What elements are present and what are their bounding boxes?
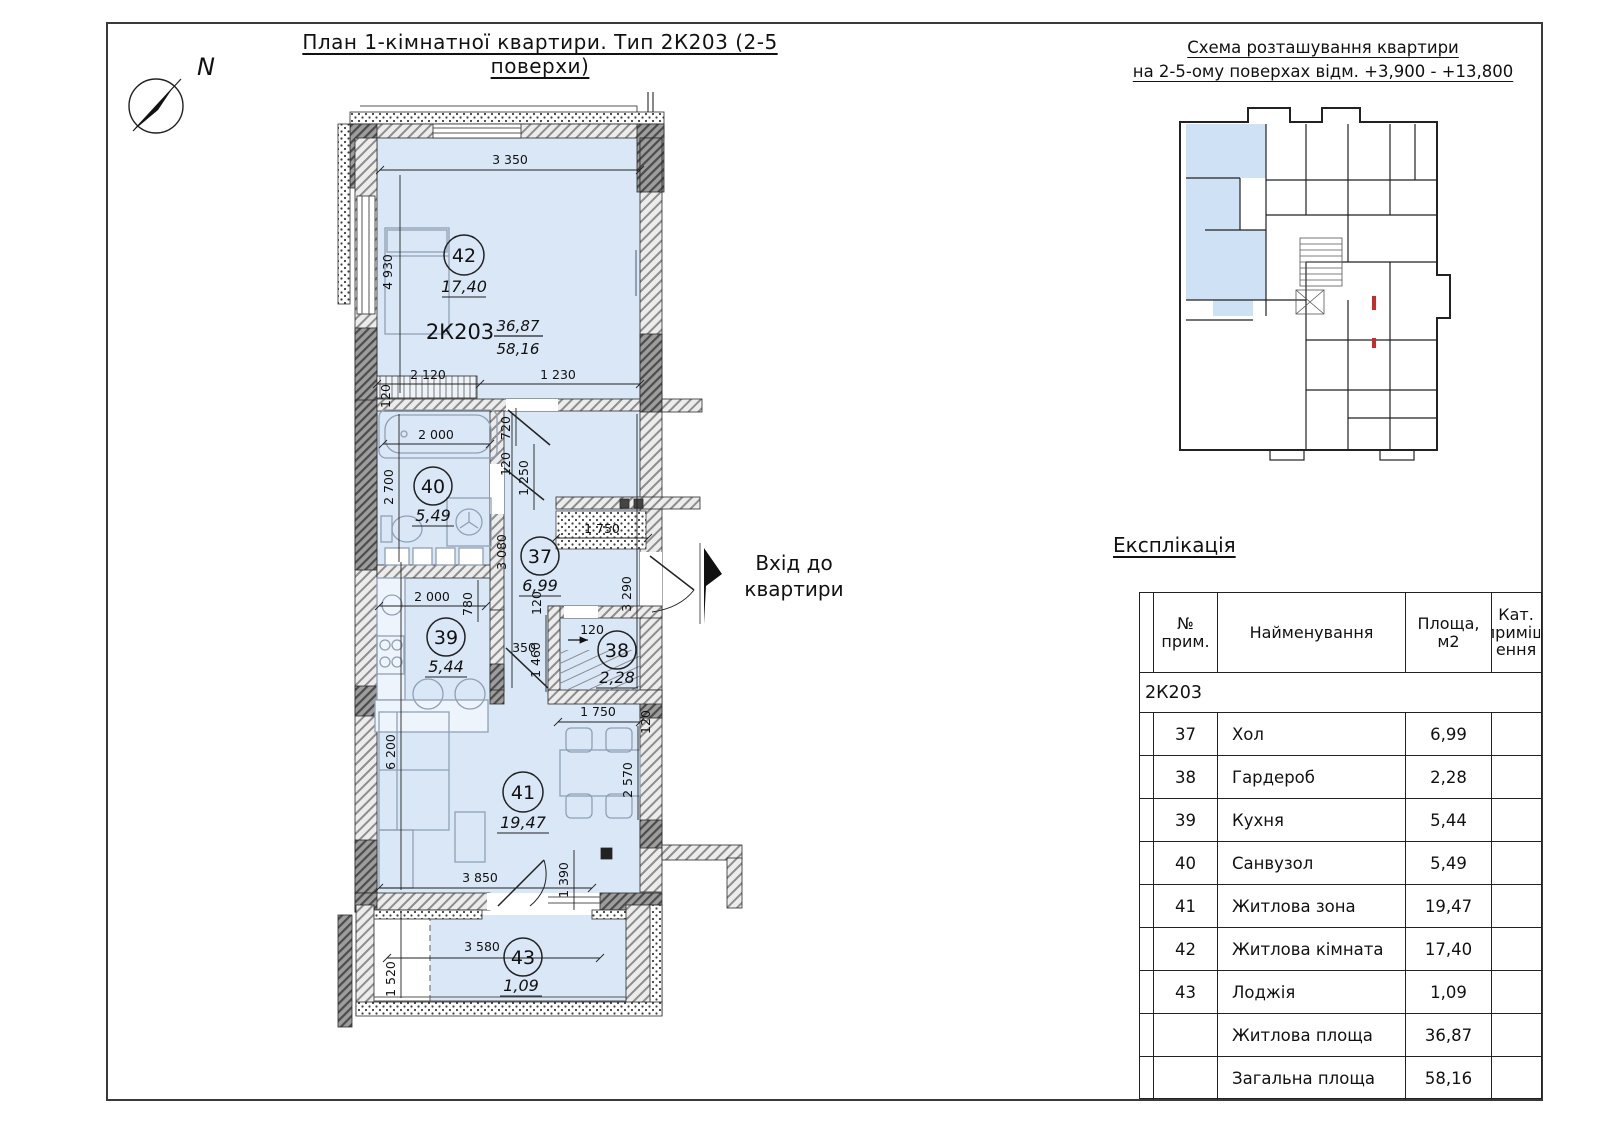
cell-num: 38: [1153, 756, 1217, 798]
dim: 1 750: [580, 704, 616, 719]
cell-num: 43: [1153, 971, 1217, 1013]
dim: 120: [638, 710, 653, 734]
col-header-area: Площа, м2: [1405, 593, 1491, 672]
dim: 2 570: [620, 762, 635, 798]
room-number: 43: [511, 947, 535, 969]
cell-area: 5,49: [1405, 842, 1491, 884]
table-header-row: № прим. Найменування Площа, м2 Кат. прим…: [1140, 593, 1541, 673]
apartment-plan: 3 350 4 930 2 120 1 230 120 2 000 2 700 …: [338, 92, 742, 1027]
cell-area: 6,99: [1405, 713, 1491, 755]
location-scheme: [1180, 108, 1450, 460]
cell-num: 42: [1153, 928, 1217, 970]
room-number: 38: [605, 640, 629, 662]
cell-cat: [1491, 713, 1540, 755]
cell-name: Лоджія: [1217, 971, 1405, 1013]
living-area-value: 36,87: [497, 317, 540, 335]
dim: 3 580: [464, 939, 500, 954]
room-area: 2,28: [599, 668, 635, 687]
table-row: 43 Лоджія 1,09: [1140, 971, 1541, 1014]
dim: 2 120: [410, 367, 446, 382]
table-row-total-living: Житлова площа 36,87: [1140, 1014, 1541, 1057]
drawing-sheet: N: [0, 0, 1600, 1132]
entrance-arrow-icon: [704, 548, 722, 624]
apartment-code: 2К203: [426, 320, 494, 344]
cell-cat: [1491, 885, 1540, 927]
col-header-num: № прим.: [1153, 593, 1217, 672]
red-marker: [1372, 296, 1376, 310]
cell-cat: [1491, 756, 1540, 798]
entrance-label-line2: квартири: [730, 576, 858, 602]
dim: 720: [498, 416, 513, 440]
cell-name: Гардероб: [1217, 756, 1405, 798]
explication-title: Експлікація: [1113, 533, 1236, 557]
dim: 3 290: [619, 576, 634, 612]
cell-area: 58,16: [1405, 1057, 1491, 1100]
dim: 1 520: [383, 961, 398, 997]
cell-area: 17,40: [1405, 928, 1491, 970]
highlighted-apartment: [1186, 124, 1266, 300]
room-number: 40: [421, 476, 445, 498]
room-area: 5,44: [428, 657, 464, 676]
dim: 2 000: [418, 427, 454, 442]
cell-area: 1,09: [1405, 971, 1491, 1013]
dim: 1 230: [540, 367, 576, 382]
cell-name: Житлова зона: [1217, 885, 1405, 927]
room-area: 6,99: [522, 576, 558, 595]
dim: 6 200: [383, 734, 398, 770]
red-marker: [1372, 338, 1376, 348]
header-spacer: [1140, 593, 1153, 672]
dim: 120: [378, 384, 393, 408]
explication-table: № прим. Найменування Площа, м2 Кат. прим…: [1139, 592, 1542, 1099]
cell-name: Хол: [1217, 713, 1405, 755]
cell-cat: [1491, 971, 1540, 1013]
scheme-title-line1: Схема розташування квартири: [1108, 36, 1538, 60]
cell-area: 19,47: [1405, 885, 1491, 927]
room-number: 42: [452, 245, 476, 267]
cell-num: 40: [1153, 842, 1217, 884]
cell-cat: [1491, 1057, 1540, 1100]
cell-name: Кухня: [1217, 799, 1405, 841]
cell-name: Житлова кімната: [1217, 928, 1405, 970]
table-row-total-overall: Загальна площа 58,16: [1140, 1057, 1541, 1100]
dim: 120: [580, 622, 604, 637]
room-area: 1,09: [503, 976, 539, 995]
stair-core: [1296, 238, 1342, 314]
cell-cat: [1491, 928, 1540, 970]
cell-area: 36,87: [1405, 1014, 1491, 1056]
room-number: 37: [528, 546, 552, 568]
scheme-title-line2: на 2-5-ому поверхах відм. +3,900 - +13,8…: [1108, 60, 1538, 84]
cell-name: Санвузол: [1217, 842, 1405, 884]
room-number: 41: [511, 782, 535, 804]
table-row: 41 Житлова зона 19,47: [1140, 885, 1541, 928]
cell-area: 5,44: [1405, 799, 1491, 841]
dim: 1 250: [516, 460, 531, 496]
table-row: 39 Кухня 5,44: [1140, 799, 1541, 842]
cell-num: [1153, 1014, 1217, 1056]
col-header-name: Найменування: [1217, 593, 1405, 672]
table-row: 40 Санвузол 5,49: [1140, 842, 1541, 885]
plan-title: План 1-кімнатної квартири. Тип 2К203 (2-…: [250, 30, 830, 78]
total-area-value: 58,16: [497, 340, 540, 358]
dim: 120: [498, 452, 513, 476]
table-row: 42 Житлова кімната 17,40: [1140, 928, 1541, 971]
cell-num: 37: [1153, 713, 1217, 755]
cell-num: 41: [1153, 885, 1217, 927]
north-compass-icon: N: [129, 53, 215, 133]
cell-name: Житлова площа: [1217, 1014, 1405, 1056]
dim: 1 390: [556, 862, 571, 898]
room-area: 17,40: [441, 277, 487, 296]
dim: 3 850: [462, 870, 498, 885]
room-area: 19,47: [500, 813, 547, 832]
table-row: 38 Гардероб 2,28: [1140, 756, 1541, 799]
table-row: 37 Хол 6,99: [1140, 713, 1541, 756]
dim: 4 930: [380, 254, 395, 290]
dim: 3 080: [494, 534, 509, 570]
cell-num: 39: [1153, 799, 1217, 841]
table-group-row: 2К203: [1140, 673, 1541, 713]
dim: 1 750: [584, 521, 620, 536]
dim: 2 000: [414, 589, 450, 604]
cell-cat: [1491, 1014, 1540, 1056]
entrance-label-line1: Вхід до: [730, 550, 858, 576]
cell-name: Загальна площа: [1217, 1057, 1405, 1100]
compass-north-label: N: [197, 53, 215, 81]
cell-cat: [1491, 842, 1540, 884]
dim: 3 350: [492, 152, 528, 167]
entrance-label: Вхід до квартири: [730, 550, 858, 602]
cell-area: 2,28: [1405, 756, 1491, 798]
scheme-title: Схема розташування квартири на 2-5-ому п…: [1108, 36, 1538, 84]
dim: 780: [460, 592, 475, 616]
dim: 1 460: [528, 642, 543, 678]
col-header-cat: Кат. приміщ ення: [1491, 593, 1540, 672]
cell-cat: [1491, 799, 1540, 841]
cell-num: [1153, 1057, 1217, 1100]
room-number: 39: [434, 627, 458, 649]
dim: 2 700: [381, 469, 396, 505]
room-area: 5,49: [415, 506, 451, 525]
